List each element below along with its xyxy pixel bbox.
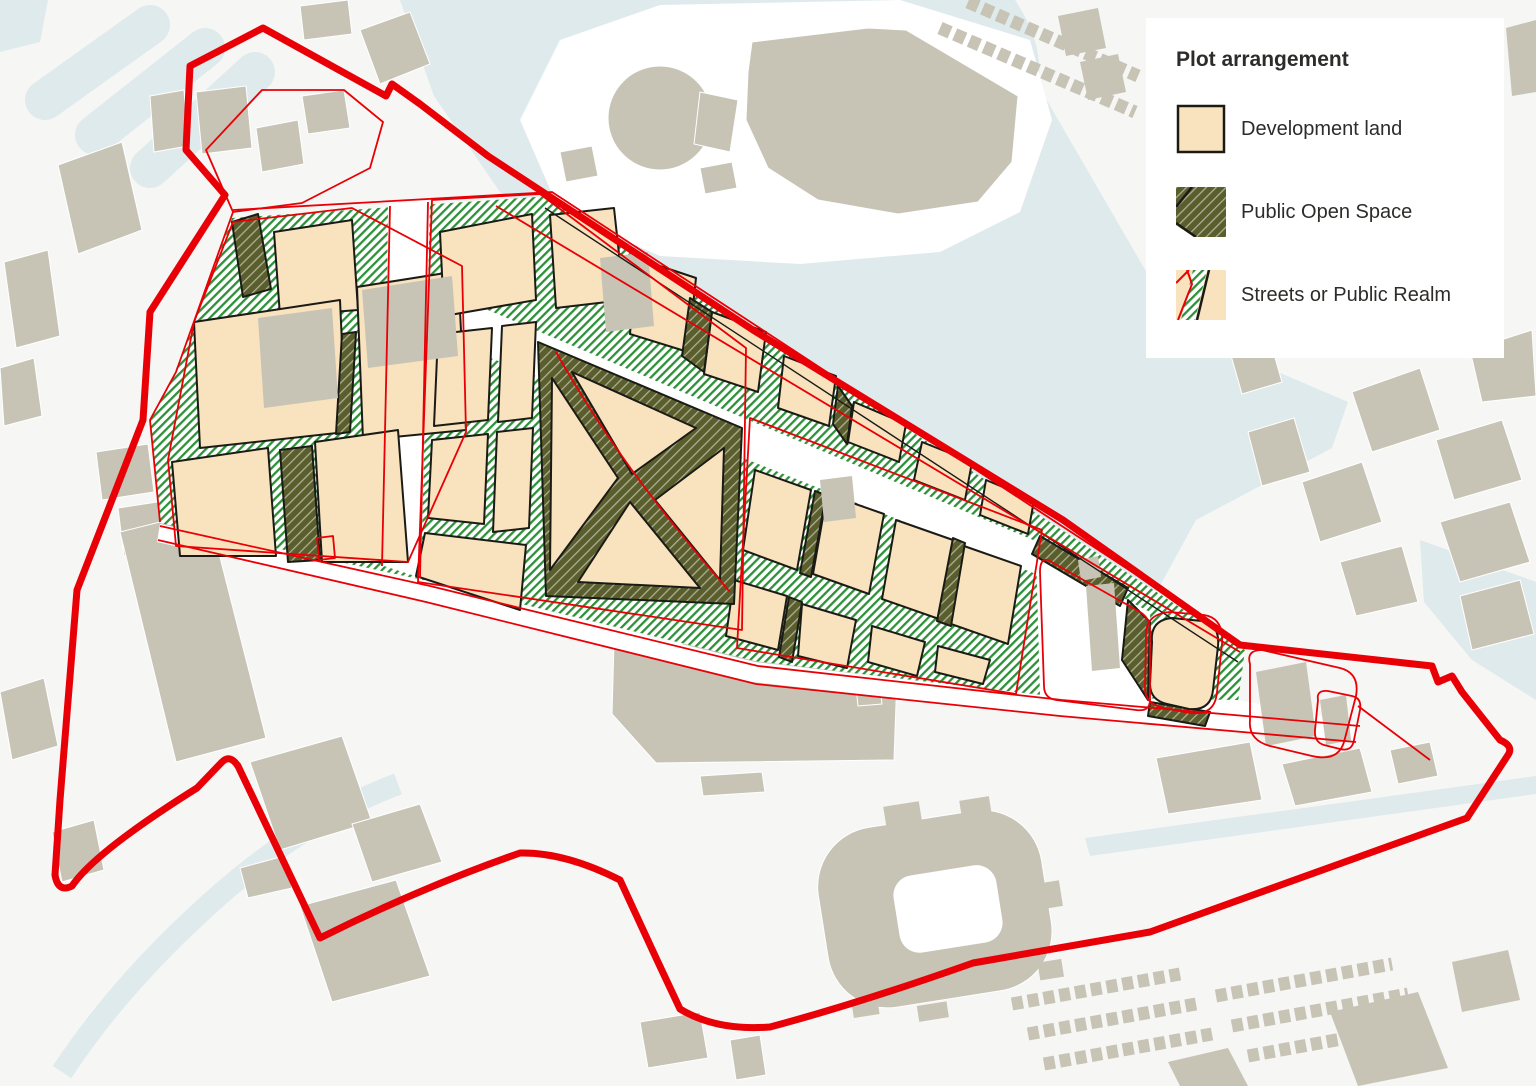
terraces-bottom-right [1012,950,1520,1086]
rounded-plot [1150,618,1218,709]
round-warehouse [608,66,712,170]
legend-item-public-open-space: Public Open Space [1176,187,1504,237]
legend-title: Plot arrangement [1176,48,1504,72]
development-land-swatch [1176,104,1226,154]
streets-public-realm-swatch [1176,270,1226,320]
legend-label-development-land: Development land [1241,118,1402,141]
legend-panel: Plot arrangement Development land Public… [1146,18,1504,358]
public-open-space-swatch [1176,187,1226,237]
legend-label-public-open-space: Public Open Space [1241,201,1412,224]
legend-item-streets-public-realm: Streets or Public Realm [1176,270,1504,320]
masterplan-page: Plot arrangement Development land Public… [0,0,1536,1086]
legend-item-development-land: Development land [1176,104,1504,154]
legend-label-streets-public-realm: Streets or Public Realm [1241,284,1451,307]
